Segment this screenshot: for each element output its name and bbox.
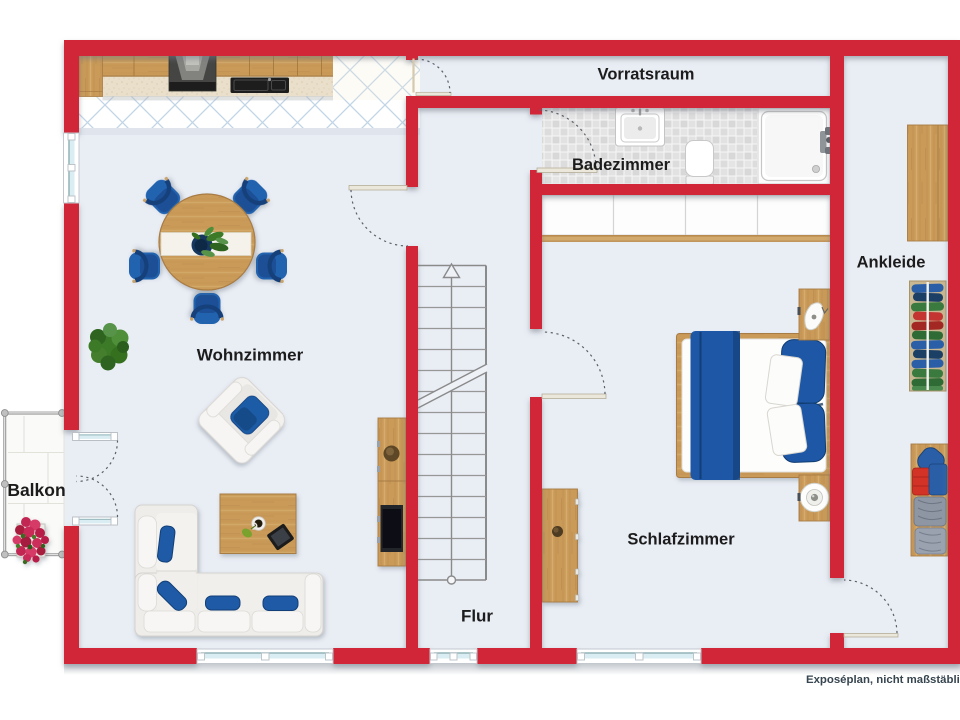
svg-text:Flur: Flur [461, 607, 493, 626]
svg-text:Schlafzimmer: Schlafzimmer [627, 531, 735, 549]
svg-text:Exposéplan, nicht maßstäblich: Exposéplan, nicht maßstäblich [806, 674, 960, 686]
svg-text:Wohnzimmer: Wohnzimmer [197, 346, 304, 365]
svg-text:Ankleide: Ankleide [857, 254, 926, 272]
svg-text:Vorratsraum: Vorratsraum [598, 66, 695, 84]
svg-text:Balkon: Balkon [7, 480, 65, 500]
svg-text:Badezimmer: Badezimmer [572, 156, 671, 174]
